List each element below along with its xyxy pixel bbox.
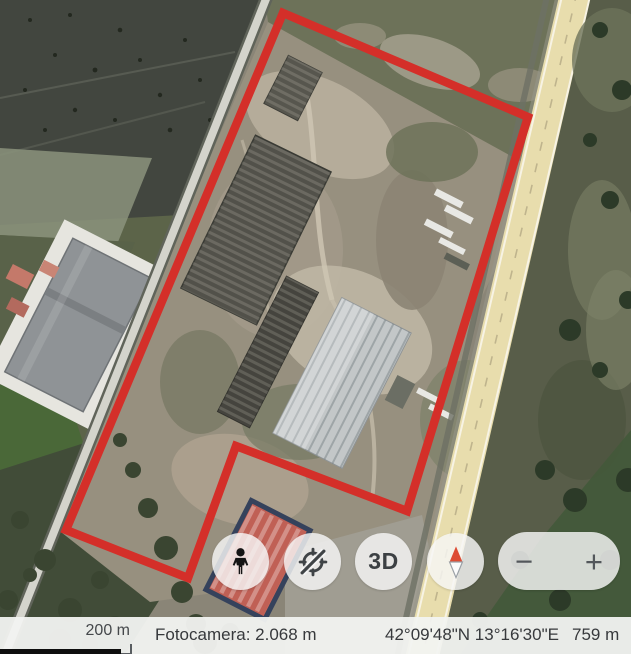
compass-button[interactable] [427, 533, 484, 590]
camera-altitude-readout: Fotocamera: 2.068 m [155, 625, 317, 645]
rotation-button[interactable] [284, 533, 341, 590]
pegman-icon [227, 547, 254, 577]
view-3d-label: 3D [368, 548, 398, 575]
zoom-in-button[interactable]: + [585, 546, 603, 577]
compass-north-icon [438, 544, 474, 580]
elevation-readout: 759 m [572, 625, 619, 645]
view-3d-button[interactable]: 3D [355, 533, 412, 590]
pegman-button[interactable] [212, 533, 269, 590]
zoom-control: − + [498, 532, 620, 590]
rotation-disabled-icon [296, 545, 330, 579]
scale-label: 200 m [0, 622, 130, 640]
scale-dark-bar [0, 649, 121, 654]
coordinates-readout: 42°09'48"N 13°16'30"E [385, 625, 559, 645]
status-bar: 200 m Fotocamera: 2.068 m 42°09'48"N 13°… [0, 617, 631, 654]
earth-app-window: 3D − + 200 m Fotocamera: 2.068 m 42°09'4… [0, 0, 631, 654]
zoom-out-button[interactable]: − [515, 546, 533, 577]
